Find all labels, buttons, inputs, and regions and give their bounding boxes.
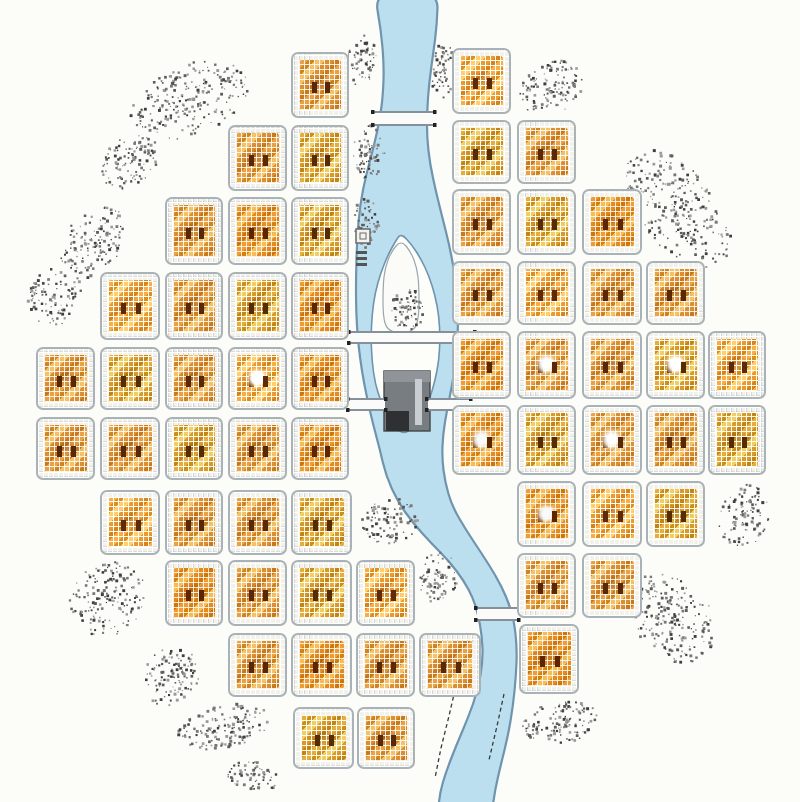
city-block bbox=[452, 331, 511, 399]
city-block bbox=[519, 624, 579, 694]
city-block bbox=[228, 560, 287, 626]
city-block bbox=[582, 189, 642, 255]
city-block-grid bbox=[460, 56, 503, 106]
city-block bbox=[100, 417, 160, 480]
city-block-grid bbox=[590, 269, 634, 317]
city-block bbox=[165, 197, 223, 265]
city-block-grid bbox=[299, 60, 341, 110]
city-block-grid bbox=[654, 269, 697, 317]
city-block-grid bbox=[525, 489, 568, 539]
city-block-grid bbox=[173, 280, 215, 332]
city-block bbox=[452, 120, 511, 184]
city-block-grid bbox=[236, 568, 279, 618]
city-block bbox=[517, 481, 576, 547]
city-block bbox=[228, 490, 287, 555]
city-block bbox=[582, 405, 642, 475]
city-block bbox=[646, 481, 705, 547]
city-block bbox=[100, 490, 160, 555]
city-block bbox=[100, 272, 160, 340]
city-block bbox=[36, 417, 95, 480]
city-block bbox=[293, 707, 354, 769]
city-block-grid bbox=[590, 489, 634, 539]
city-block-grid bbox=[299, 133, 341, 183]
city-block-grid bbox=[460, 413, 503, 467]
city-block-grid bbox=[173, 498, 215, 547]
city-block-grid bbox=[525, 197, 568, 247]
city-block bbox=[228, 197, 287, 265]
city-block bbox=[646, 331, 705, 399]
city-block-grid bbox=[299, 568, 344, 618]
city-block bbox=[165, 347, 223, 410]
city-block-grid bbox=[716, 413, 758, 467]
block-highlight bbox=[663, 351, 688, 377]
city-block bbox=[646, 405, 705, 475]
city-block-grid bbox=[590, 197, 634, 247]
city-block bbox=[228, 417, 287, 480]
city-block-grid bbox=[654, 339, 697, 391]
city-block-grid bbox=[365, 715, 407, 761]
city-block-grid bbox=[527, 632, 571, 686]
city-block bbox=[452, 405, 511, 475]
city-block-grid bbox=[364, 641, 407, 689]
city-block-grid bbox=[299, 425, 341, 472]
city-block-grid bbox=[173, 425, 215, 472]
city-block-grid bbox=[173, 205, 215, 257]
city-block bbox=[291, 347, 349, 410]
city-block bbox=[517, 189, 576, 255]
city-block-grid bbox=[299, 641, 344, 689]
city-block-grid bbox=[525, 128, 568, 176]
city-block bbox=[165, 272, 223, 340]
city-block bbox=[582, 331, 642, 399]
city-block bbox=[100, 347, 160, 410]
block-highlight bbox=[599, 426, 625, 453]
city-block-grid bbox=[364, 568, 407, 618]
city-block bbox=[517, 331, 576, 399]
city-block bbox=[228, 347, 287, 410]
city-block bbox=[582, 553, 642, 618]
city-block-grid bbox=[525, 561, 568, 610]
city-block-grid bbox=[44, 355, 87, 402]
city-block bbox=[582, 481, 642, 547]
city-block bbox=[291, 272, 349, 340]
city-block-grid bbox=[236, 205, 279, 257]
city-block bbox=[291, 197, 349, 265]
city-block bbox=[419, 633, 481, 697]
city-block-grid bbox=[654, 489, 697, 539]
city-block bbox=[228, 272, 287, 340]
city-block-grid bbox=[590, 339, 634, 391]
city-block bbox=[452, 48, 511, 114]
city-block-grid bbox=[460, 197, 503, 247]
city-block bbox=[356, 633, 415, 697]
city-block-grid bbox=[654, 413, 697, 467]
city-block bbox=[452, 189, 511, 255]
city-block-grid bbox=[236, 425, 279, 472]
city-block bbox=[36, 347, 95, 410]
city-block-grid bbox=[301, 715, 346, 761]
city-block-grid bbox=[299, 205, 341, 257]
blocks-layer bbox=[0, 0, 800, 802]
city-block bbox=[646, 261, 705, 325]
city-block-grid bbox=[108, 280, 152, 332]
city-block-grid bbox=[236, 641, 279, 689]
block-highlight bbox=[245, 366, 270, 390]
city-block bbox=[517, 405, 576, 475]
city-block-grid bbox=[525, 269, 568, 317]
city-block bbox=[356, 560, 415, 626]
city-block-grid bbox=[236, 498, 279, 547]
city-map-canvas bbox=[0, 0, 800, 802]
city-block bbox=[165, 560, 223, 626]
city-block-grid bbox=[460, 269, 503, 317]
city-block-grid bbox=[108, 425, 152, 472]
city-block-grid bbox=[299, 498, 344, 547]
city-block-grid bbox=[525, 413, 568, 467]
city-block bbox=[291, 417, 349, 480]
block-highlight bbox=[534, 501, 559, 526]
city-block bbox=[582, 261, 642, 325]
city-block bbox=[357, 707, 415, 769]
city-block-grid bbox=[44, 425, 87, 472]
city-block-grid bbox=[299, 280, 341, 332]
city-block-grid bbox=[590, 413, 634, 467]
city-block-grid bbox=[173, 568, 215, 618]
city-block-grid bbox=[525, 339, 568, 391]
block-highlight bbox=[534, 351, 559, 377]
city-block bbox=[517, 553, 576, 618]
city-block bbox=[165, 490, 223, 555]
city-block-grid bbox=[236, 280, 279, 332]
city-block bbox=[517, 261, 576, 325]
city-block bbox=[291, 633, 352, 697]
city-block bbox=[291, 490, 352, 555]
city-block-grid bbox=[108, 355, 152, 402]
city-block bbox=[228, 125, 287, 191]
city-block bbox=[452, 261, 511, 325]
city-block bbox=[165, 417, 223, 480]
city-block-grid bbox=[299, 355, 341, 402]
city-block-grid bbox=[236, 355, 279, 402]
city-block-grid bbox=[460, 128, 503, 176]
city-block-grid bbox=[460, 339, 503, 391]
city-block bbox=[708, 405, 766, 475]
city-block-grid bbox=[108, 498, 152, 547]
city-block-grid bbox=[716, 339, 758, 391]
city-block-grid bbox=[427, 641, 473, 689]
city-block bbox=[708, 331, 766, 399]
block-highlight bbox=[469, 426, 494, 453]
city-block-grid bbox=[590, 561, 634, 610]
city-block bbox=[291, 52, 349, 118]
city-block-grid bbox=[173, 355, 215, 402]
city-block-grid bbox=[236, 133, 279, 183]
city-block bbox=[291, 560, 352, 626]
city-block bbox=[517, 120, 576, 184]
city-block bbox=[291, 125, 349, 191]
city-block bbox=[228, 633, 287, 697]
